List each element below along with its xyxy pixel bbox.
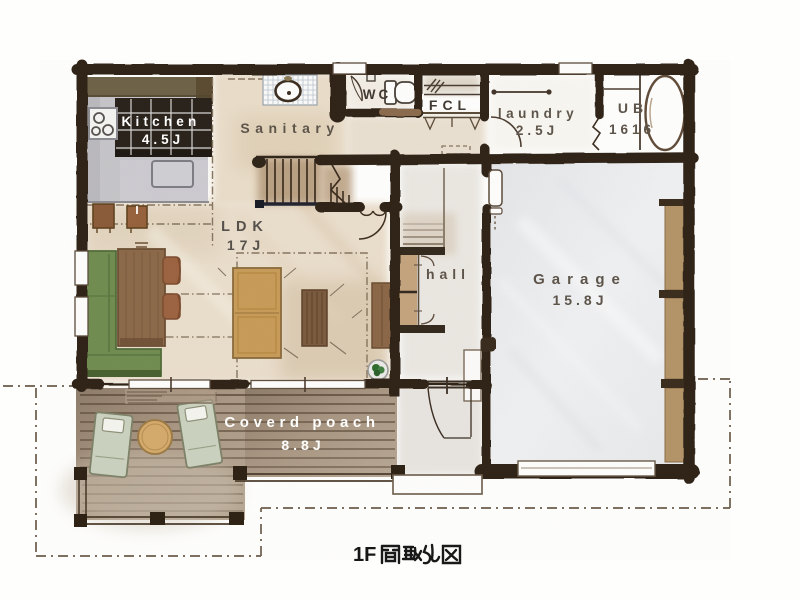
svg-text:2.5J: 2.5J	[516, 123, 558, 138]
svg-text:hall: hall	[426, 266, 470, 282]
svg-text:1F: 1F	[353, 544, 376, 566]
svg-text:17J: 17J	[227, 237, 265, 253]
svg-text:UB: UB	[618, 100, 648, 116]
svg-text:Garage: Garage	[533, 271, 627, 288]
svg-text:laundry: laundry	[498, 106, 578, 121]
svg-text:1616: 1616	[609, 122, 655, 137]
svg-text:WC: WC	[363, 87, 392, 102]
svg-text:FCL: FCL	[429, 97, 471, 113]
svg-text:15.8J: 15.8J	[552, 292, 607, 308]
svg-text:Sanitary: Sanitary	[240, 120, 339, 136]
svg-text:LDK: LDK	[221, 219, 269, 235]
